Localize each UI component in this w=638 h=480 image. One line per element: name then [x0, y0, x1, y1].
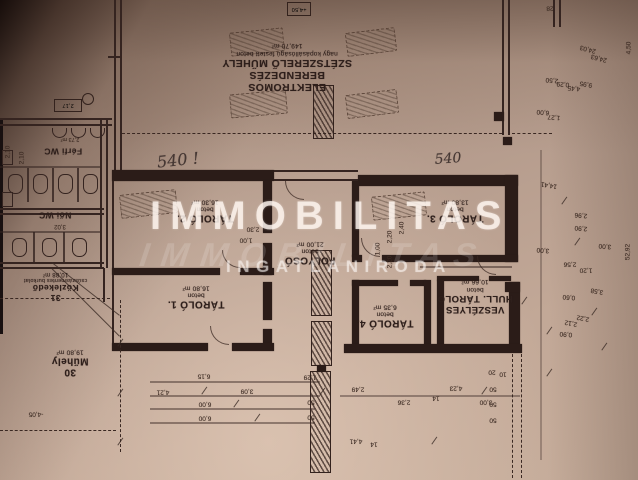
dimension-label: 14 — [432, 395, 439, 402]
dimension-label: 2,36 — [398, 399, 411, 406]
dimension-label: 6,00 — [199, 401, 212, 408]
dimension-label: 2,10 — [5, 146, 12, 159]
dimension-label: -4,05 — [29, 411, 44, 418]
dimension-label: 14,41 — [540, 180, 557, 190]
dimension-label: 1,27 — [547, 113, 560, 121]
dimension-label: 4,21 — [157, 389, 170, 396]
dimension-label: 10 — [499, 371, 506, 378]
dimension-label: 3,00 — [598, 242, 611, 250]
dimension-label: 50 — [489, 401, 496, 408]
dimension-label: 2,10 — [19, 152, 26, 165]
dimension-label: 2,90 — [574, 224, 587, 232]
dimension-label: 2,49 — [352, 386, 365, 393]
dimension-label: 1,20 — [580, 267, 593, 274]
dimension-label: 50 — [307, 399, 314, 406]
handwritten-note: 540 ! — [156, 148, 200, 171]
dimension-label: 50 — [307, 414, 314, 421]
dimension-label: 2,30 — [247, 226, 260, 233]
dimension-label: 2,40 — [399, 222, 406, 235]
dimension-label: 3,00 — [536, 246, 549, 254]
dimension-label: 9,95 — [579, 79, 593, 88]
dimension-label: 52,92 — [625, 244, 632, 260]
dimension-label: 1,00 — [375, 243, 382, 256]
dimension-label: 6,00 — [199, 415, 212, 422]
dimension-layer: 6,154,213,096,006,001,2950502,492,36143,… — [0, 0, 638, 480]
dimension-label: 1,00 — [240, 237, 253, 244]
dimension-label: 2,12 — [564, 318, 578, 327]
dimension-label: 14 — [370, 441, 377, 448]
dimension-label: 6,15 — [198, 373, 211, 380]
dimension-label: 2,96 — [574, 211, 587, 219]
dimension-label: 0,60 — [562, 293, 575, 301]
dimension-label: 3,02 — [54, 223, 66, 229]
floor-plan-photo: +4,50 2,17 ELEKTROMOS BERENDEZÉS SZÉTSZE… — [0, 0, 638, 480]
handwritten-note: 540 — [434, 150, 462, 168]
dimension-label: 20 — [488, 369, 495, 376]
dimension-label: 2,20 — [387, 231, 394, 244]
dimension-label: 50 — [489, 386, 496, 393]
dimension-label: 3,58 — [590, 286, 604, 295]
dimension-label: 2,20 — [387, 256, 394, 269]
dimension-label: 28 — [546, 5, 553, 12]
dimension-label: 4,41 — [350, 438, 363, 445]
dimension-label: 2,22 — [576, 313, 590, 322]
dimension-label: 1,29 — [304, 374, 317, 381]
dimension-label: 0,90 — [559, 330, 572, 338]
dimension-label: 24,63 — [590, 53, 608, 64]
dimension-label: 4,23 — [450, 385, 463, 392]
dimension-label: 50 — [489, 417, 496, 424]
dimension-label: 4,50 — [626, 42, 633, 55]
dimension-label: 3,09 — [241, 388, 254, 395]
dimension-label: 2,56 — [564, 261, 577, 268]
dimension-label: 2,73 m² — [61, 136, 80, 142]
